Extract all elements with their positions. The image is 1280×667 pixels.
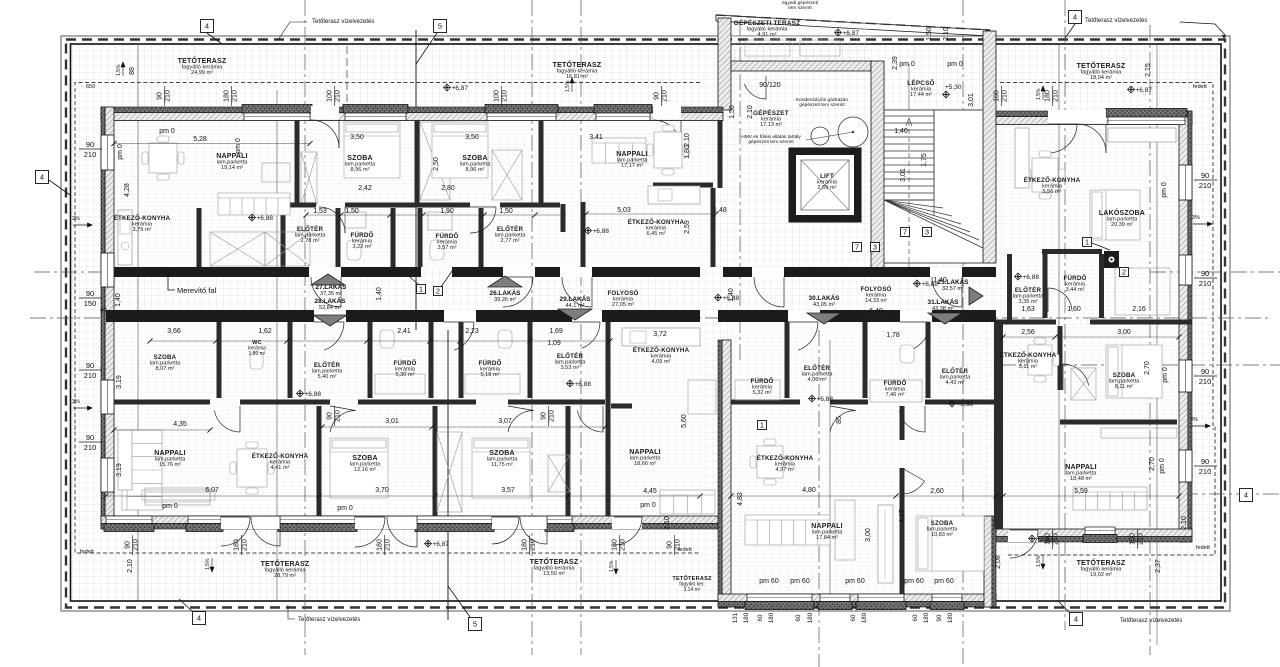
svg-text:4: 4 bbox=[205, 22, 209, 31]
svg-text:2,80: 2,80 bbox=[441, 185, 455, 192]
svg-text:650: 650 bbox=[86, 84, 95, 90]
svg-text:210: 210 bbox=[1199, 279, 1212, 288]
svg-text:2,37: 2,37 bbox=[1155, 559, 1162, 573]
svg-text:2,77 m²: 2,77 m² bbox=[501, 238, 520, 244]
svg-text:37,35 m²: 37,35 m² bbox=[320, 291, 342, 297]
svg-text:4: 4 bbox=[40, 173, 44, 182]
svg-text:4,06 m²: 4,06 m² bbox=[808, 377, 827, 383]
svg-text:13,50 m²: 13,50 m² bbox=[543, 571, 565, 577]
svg-text:2,78 m²: 2,78 m² bbox=[301, 238, 320, 244]
svg-text:terv szerint: terv szerint bbox=[788, 5, 812, 11]
svg-text:18,04 m²: 18,04 m² bbox=[1090, 75, 1112, 81]
svg-text:4,45: 4,45 bbox=[643, 488, 657, 495]
svg-text:3,00: 3,00 bbox=[865, 528, 872, 542]
svg-text:Tetőterasz vízelvezetés: Tetőterasz vízelvezetés bbox=[312, 19, 374, 25]
svg-text:5,56 m²: 5,56 m² bbox=[1043, 189, 1062, 195]
svg-text:8,96 m²: 8,96 m² bbox=[351, 167, 370, 173]
svg-text:3,79 m²: 3,79 m² bbox=[133, 227, 152, 233]
svg-text:90: 90 bbox=[1201, 367, 1209, 376]
svg-text:5,40 m²: 5,40 m² bbox=[318, 374, 337, 380]
svg-text:1,40: 1,40 bbox=[115, 293, 122, 307]
svg-text:17,84 m²: 17,84 m² bbox=[816, 535, 838, 541]
svg-text:52,84 m²: 52,84 m² bbox=[319, 305, 341, 311]
svg-text:pm 60: pm 60 bbox=[790, 578, 810, 585]
svg-text:gépészeti terv szerint: gépészeti terv szerint bbox=[799, 102, 845, 108]
svg-text:90: 90 bbox=[125, 541, 132, 549]
svg-text:88: 88 bbox=[129, 67, 136, 75]
svg-text:60: 60 bbox=[850, 614, 857, 621]
svg-text:85: 85 bbox=[836, 416, 843, 424]
svg-text:27.LAKÁS: 27.LAKÁS bbox=[316, 282, 348, 291]
svg-text:Tetőterasz vízelvezetés: Tetőterasz vízelvezetés bbox=[1120, 618, 1182, 624]
svg-text:19,14 m²: 19,14 m² bbox=[221, 165, 243, 171]
svg-text:2,10: 2,10 bbox=[747, 105, 754, 119]
svg-text:3,14 m²: 3,14 m² bbox=[684, 587, 701, 593]
svg-text:180: 180 bbox=[1045, 90, 1052, 102]
svg-text:210: 210 bbox=[1199, 467, 1212, 476]
svg-text:1,50: 1,50 bbox=[499, 208, 513, 215]
svg-text:1: 1 bbox=[760, 421, 764, 430]
svg-text:2,39: 2,39 bbox=[892, 56, 899, 70]
svg-text:180: 180 bbox=[522, 539, 529, 551]
svg-text:pm 0: pm 0 bbox=[1159, 458, 1166, 474]
svg-text:40: 40 bbox=[100, 308, 107, 314]
svg-text:2,41: 2,41 bbox=[397, 328, 411, 335]
svg-text:3,53 m²: 3,53 m² bbox=[561, 365, 580, 371]
svg-text:+6,87: +6,87 bbox=[843, 30, 860, 37]
svg-text:pm 0: pm 0 bbox=[162, 503, 178, 510]
svg-text:3,01: 3,01 bbox=[900, 168, 907, 182]
svg-text:1,48: 1,48 bbox=[713, 207, 727, 214]
svg-text:1,63: 1,63 bbox=[1021, 306, 1035, 313]
svg-text:3%: 3% bbox=[1192, 215, 1200, 221]
svg-text:1,5%: 1,5% bbox=[1036, 555, 1042, 567]
svg-text:90: 90 bbox=[667, 541, 674, 549]
svg-text:2: 2 bbox=[436, 287, 440, 296]
svg-text:210: 210 bbox=[1053, 533, 1060, 545]
svg-text:Merevítő fal: Merevítő fal bbox=[177, 286, 217, 295]
svg-text:150: 150 bbox=[1130, 533, 1137, 545]
svg-text:2,60: 2,60 bbox=[930, 488, 944, 495]
svg-text:90: 90 bbox=[86, 433, 94, 442]
svg-text:fedett: fedett bbox=[1196, 545, 1210, 551]
svg-text:1,5%: 1,5% bbox=[116, 64, 122, 76]
svg-text:2,10: 2,10 bbox=[684, 133, 691, 147]
svg-text:1,40: 1,40 bbox=[376, 287, 383, 301]
svg-text:4,80: 4,80 bbox=[802, 487, 816, 494]
svg-text:1: 1 bbox=[1085, 238, 1089, 247]
svg-text:3,19: 3,19 bbox=[116, 463, 123, 477]
svg-text:60: 60 bbox=[912, 614, 919, 621]
svg-text:2,10: 2,10 bbox=[664, 516, 671, 530]
svg-text:2,10: 2,10 bbox=[1181, 516, 1188, 530]
svg-text:1,5%: 1,5% bbox=[205, 558, 211, 570]
svg-text:18,48 m²: 18,48 m² bbox=[1070, 476, 1092, 482]
svg-text:100: 100 bbox=[494, 90, 501, 102]
svg-text:pm 0: pm 0 bbox=[899, 61, 915, 68]
svg-text:210: 210 bbox=[335, 90, 342, 102]
svg-text:16,81 m²: 16,81 m² bbox=[566, 74, 588, 80]
svg-text:15,76 m²: 15,76 m² bbox=[159, 462, 181, 468]
svg-text:5,60: 5,60 bbox=[681, 414, 688, 428]
svg-text:210: 210 bbox=[232, 90, 239, 102]
svg-text:19,02 m²: 19,02 m² bbox=[1090, 572, 1112, 578]
svg-text:17,13 m²: 17,13 m² bbox=[760, 122, 782, 128]
svg-text:+6,88: +6,88 bbox=[305, 391, 322, 398]
svg-text:14,33 m²: 14,33 m² bbox=[865, 298, 887, 304]
svg-text:+6,87: +6,87 bbox=[452, 85, 469, 92]
svg-text:3,22 m²: 3,22 m² bbox=[353, 244, 372, 250]
svg-text:1,53: 1,53 bbox=[313, 208, 327, 215]
svg-text:210: 210 bbox=[165, 90, 172, 102]
svg-text:90/120: 90/120 bbox=[759, 82, 781, 89]
svg-text:210: 210 bbox=[530, 539, 537, 551]
svg-text:210: 210 bbox=[133, 539, 140, 551]
svg-text:1,40: 1,40 bbox=[894, 128, 908, 135]
svg-text:210: 210 bbox=[385, 539, 392, 551]
svg-text:1,50: 1,50 bbox=[729, 105, 736, 119]
svg-text:39,26 m²: 39,26 m² bbox=[494, 297, 516, 303]
svg-text:3,72: 3,72 bbox=[653, 331, 667, 338]
svg-text:210: 210 bbox=[1199, 377, 1212, 386]
svg-text:7,46 m²: 7,46 m² bbox=[886, 392, 905, 398]
svg-text:2,10: 2,10 bbox=[943, 27, 950, 41]
svg-text:3,41: 3,41 bbox=[589, 134, 603, 141]
svg-text:3,01: 3,01 bbox=[385, 418, 399, 425]
svg-text:pm 0: pm 0 bbox=[235, 138, 242, 154]
svg-text:3,66: 3,66 bbox=[167, 328, 181, 335]
svg-text:1,90: 1,90 bbox=[440, 208, 454, 215]
svg-text:24,99 m²: 24,99 m² bbox=[191, 70, 213, 76]
svg-text:90: 90 bbox=[86, 361, 94, 370]
svg-text:1,5%: 1,5% bbox=[565, 80, 571, 92]
svg-text:210: 210 bbox=[620, 539, 627, 551]
svg-text:30.LAKÁS: 30.LAKÁS bbox=[809, 293, 841, 302]
svg-text:3: 3 bbox=[925, 228, 929, 237]
svg-text:5,28: 5,28 bbox=[193, 136, 207, 143]
svg-text:3,50: 3,50 bbox=[465, 134, 479, 141]
svg-text:2,10: 2,10 bbox=[127, 559, 134, 573]
svg-text:210: 210 bbox=[242, 539, 249, 551]
svg-text:1,5%: 1,5% bbox=[1036, 88, 1042, 100]
svg-text:28.LAKÁS: 28.LAKÁS bbox=[315, 296, 347, 305]
svg-text:2,50: 2,50 bbox=[433, 157, 440, 171]
svg-text:131: 131 bbox=[732, 612, 739, 623]
svg-text:5,59: 5,59 bbox=[1074, 488, 1088, 495]
svg-text:1,78: 1,78 bbox=[886, 332, 900, 339]
svg-text:2,70: 2,70 bbox=[1149, 457, 1156, 471]
svg-text:2,15: 2,15 bbox=[1145, 63, 1152, 77]
svg-text:fedett: fedett bbox=[1193, 84, 1207, 90]
svg-text:4: 4 bbox=[1244, 491, 1248, 500]
svg-text:pm 0: pm 0 bbox=[337, 505, 353, 512]
svg-text:1,75: 1,75 bbox=[921, 153, 928, 167]
svg-text:4,28: 4,28 bbox=[124, 183, 131, 197]
svg-text:Tetőterasz vízelvezetés: Tetőterasz vízelvezetés bbox=[298, 617, 360, 623]
svg-text:4,09 m²: 4,09 m² bbox=[652, 359, 671, 365]
svg-text:8,96 m²: 8,96 m² bbox=[466, 167, 485, 173]
svg-text:17,44 m²: 17,44 m² bbox=[910, 92, 932, 98]
svg-text:150: 150 bbox=[84, 299, 97, 308]
svg-text:1,60: 1,60 bbox=[1067, 306, 1081, 313]
svg-text:210: 210 bbox=[662, 90, 669, 102]
svg-text:210: 210 bbox=[84, 371, 97, 380]
svg-text:1,80 m²: 1,80 m² bbox=[249, 351, 266, 357]
svg-text:4,97 m²: 4,97 m² bbox=[776, 467, 795, 473]
svg-text:+6,88: +6,88 bbox=[575, 381, 592, 388]
svg-text:90: 90 bbox=[1201, 457, 1209, 466]
svg-text:3,35 m²: 3,35 m² bbox=[1019, 299, 1038, 305]
svg-text:90: 90 bbox=[86, 140, 94, 149]
svg-text:43,38 m²: 43,38 m² bbox=[932, 306, 954, 312]
svg-text:1,50: 1,50 bbox=[926, 27, 933, 41]
svg-text:11,75 m²: 11,75 m² bbox=[491, 462, 513, 468]
svg-text:3,00: 3,00 bbox=[1117, 329, 1131, 336]
svg-text:pm 0: pm 0 bbox=[640, 502, 656, 509]
svg-text:3%: 3% bbox=[72, 399, 80, 405]
svg-text:2,08: 2,08 bbox=[995, 555, 1002, 569]
svg-text:210: 210 bbox=[675, 539, 682, 551]
svg-text:+6,88: +6,88 bbox=[593, 228, 610, 235]
svg-text:210: 210 bbox=[549, 410, 556, 422]
svg-text:5,11 m²: 5,11 m² bbox=[1019, 364, 1038, 370]
svg-text:90: 90 bbox=[1201, 269, 1209, 278]
svg-text:6,07: 6,07 bbox=[205, 487, 219, 494]
svg-text:5,30 m²: 5,30 m² bbox=[396, 372, 415, 378]
svg-text:210: 210 bbox=[1002, 90, 1009, 102]
svg-text:2,16: 2,16 bbox=[1132, 306, 1146, 313]
svg-text:pm 0: pm 0 bbox=[159, 128, 175, 135]
svg-text:210: 210 bbox=[1199, 181, 1212, 190]
svg-text:2,70: 2,70 bbox=[1144, 361, 1151, 375]
svg-text:180: 180 bbox=[923, 612, 930, 623]
svg-text:3,44 m²: 3,44 m² bbox=[1066, 287, 1085, 293]
svg-text:1,40: 1,40 bbox=[728, 288, 735, 302]
svg-text:2,23: 2,23 bbox=[465, 328, 479, 335]
svg-text:60: 60 bbox=[795, 614, 802, 621]
svg-text:4,35: 4,35 bbox=[173, 421, 187, 428]
svg-text:210: 210 bbox=[502, 90, 509, 102]
svg-text:180: 180 bbox=[1045, 533, 1052, 545]
svg-text:12,16 m²: 12,16 m² bbox=[354, 467, 376, 473]
svg-text:180: 180 bbox=[234, 539, 241, 551]
svg-text:5,03: 5,03 bbox=[617, 207, 631, 214]
svg-text:3,70: 3,70 bbox=[375, 487, 389, 494]
svg-text:26.LAKÁS: 26.LAKÁS bbox=[490, 288, 522, 297]
svg-text:pm 60: pm 60 bbox=[904, 578, 924, 585]
svg-text:3,57 m²: 3,57 m² bbox=[438, 245, 457, 251]
svg-text:4: 4 bbox=[197, 614, 201, 623]
svg-text:180: 180 bbox=[947, 612, 954, 623]
svg-text:3%: 3% bbox=[1190, 417, 1198, 423]
svg-text:90: 90 bbox=[936, 614, 943, 621]
svg-text:pm 60: pm 60 bbox=[845, 578, 865, 585]
svg-text:2: 2 bbox=[1122, 268, 1126, 277]
svg-text:100: 100 bbox=[327, 90, 334, 102]
svg-text:gépészeti terv szerint: gépészeti terv szerint bbox=[748, 139, 794, 145]
svg-text:180: 180 bbox=[743, 612, 750, 623]
svg-text:17,17 m²: 17,17 m² bbox=[621, 163, 643, 169]
svg-text:1,40: 1,40 bbox=[933, 277, 947, 284]
svg-text:2,56: 2,56 bbox=[1021, 329, 1035, 336]
svg-text:210: 210 bbox=[1053, 90, 1060, 102]
svg-text:180: 180 bbox=[768, 612, 775, 623]
svg-text:8,07 m²: 8,07 m² bbox=[156, 366, 175, 372]
svg-text:+6,87: +6,87 bbox=[433, 541, 450, 548]
svg-text:5,32 m²: 5,32 m² bbox=[753, 390, 772, 396]
svg-text:180: 180 bbox=[377, 539, 384, 551]
svg-text:+5,30: +5,30 bbox=[945, 84, 962, 91]
svg-text:27,05 m²: 27,05 m² bbox=[612, 302, 634, 308]
svg-text:+6,88: +6,88 bbox=[957, 401, 974, 408]
svg-text:90: 90 bbox=[86, 289, 94, 298]
svg-text:90: 90 bbox=[1201, 171, 1209, 180]
svg-text:4: 4 bbox=[1074, 615, 1078, 624]
svg-text:+6,88: +6,88 bbox=[817, 396, 834, 403]
svg-text:3,01: 3,01 bbox=[968, 93, 975, 107]
svg-text:43,05 m²: 43,05 m² bbox=[813, 302, 835, 308]
svg-text:210: 210 bbox=[84, 150, 97, 159]
svg-text:Tetőterasz vízelvezetés: Tetőterasz vízelvezetés bbox=[1085, 18, 1147, 24]
svg-text:1,5%: 1,5% bbox=[609, 560, 615, 572]
svg-text:5,18 m²: 5,18 m² bbox=[481, 372, 500, 378]
svg-text:1: 1 bbox=[419, 285, 423, 294]
svg-text:5: 5 bbox=[473, 620, 477, 629]
svg-text:4,43 m²: 4,43 m² bbox=[946, 380, 965, 386]
svg-text:31.LAKÁS: 31.LAKÁS bbox=[928, 297, 960, 306]
svg-text:100: 100 bbox=[994, 90, 1001, 102]
svg-text:18,66 m²: 18,66 m² bbox=[634, 461, 656, 467]
svg-text:1,62: 1,62 bbox=[258, 328, 272, 335]
svg-text:90: 90 bbox=[327, 412, 334, 420]
svg-text:pm 0: pm 0 bbox=[947, 61, 963, 68]
svg-text:28,79 m²: 28,79 m² bbox=[274, 573, 296, 579]
svg-text:fedett: fedett bbox=[80, 549, 94, 555]
svg-text:2,59 m²: 2,59 m² bbox=[818, 185, 837, 191]
svg-text:4,91 m²: 4,91 m² bbox=[758, 32, 777, 38]
svg-text:1,50: 1,50 bbox=[345, 208, 359, 215]
svg-text:3: 3 bbox=[873, 243, 877, 252]
svg-text:4: 4 bbox=[1073, 13, 1077, 22]
svg-text:pm 60: pm 60 bbox=[759, 578, 779, 585]
svg-text:7: 7 bbox=[903, 228, 907, 237]
svg-text:7: 7 bbox=[855, 243, 859, 252]
svg-text:pm 0: pm 0 bbox=[117, 144, 124, 160]
svg-text:+6,88: +6,88 bbox=[1023, 274, 1040, 281]
svg-text:180: 180 bbox=[861, 612, 868, 623]
svg-text:90: 90 bbox=[157, 92, 164, 100]
svg-text:pm 60: pm 60 bbox=[934, 578, 954, 585]
svg-text:3,57: 3,57 bbox=[501, 487, 515, 494]
svg-text:2,59: 2,59 bbox=[684, 220, 691, 234]
svg-text:3,50: 3,50 bbox=[350, 134, 364, 141]
svg-text:29.LAKÁS: 29.LAKÁS bbox=[560, 294, 592, 303]
svg-text:8,11 m²: 8,11 m² bbox=[1115, 384, 1134, 390]
svg-text:5: 5 bbox=[438, 22, 442, 31]
svg-text:90: 90 bbox=[654, 92, 661, 100]
svg-text:210: 210 bbox=[335, 410, 342, 422]
svg-text:90: 90 bbox=[541, 412, 548, 420]
svg-text:pm 0: pm 0 bbox=[1161, 182, 1168, 198]
svg-text:210: 210 bbox=[84, 443, 97, 452]
svg-text:1,69: 1,69 bbox=[549, 328, 563, 335]
svg-text:6,40: 6,40 bbox=[869, 308, 883, 315]
svg-text:4,83: 4,83 bbox=[737, 492, 744, 506]
svg-text:44,1 m²: 44,1 m² bbox=[566, 303, 585, 309]
svg-text:20,39 m²: 20,39 m² bbox=[1111, 222, 1133, 228]
svg-text:+6,88: +6,88 bbox=[257, 215, 274, 222]
svg-text:4,41 m²: 4,41 m² bbox=[271, 465, 290, 471]
svg-text:4,17: 4,17 bbox=[899, 509, 906, 523]
svg-text:pm 0: pm 0 bbox=[1162, 367, 1169, 383]
svg-text:60: 60 bbox=[757, 614, 764, 621]
svg-text:180: 180 bbox=[612, 539, 619, 551]
svg-text:180: 180 bbox=[224, 90, 231, 102]
svg-text:6,45 m²: 6,45 m² bbox=[647, 231, 666, 237]
svg-text:3,19: 3,19 bbox=[116, 375, 123, 389]
svg-text:1,80: 1,80 bbox=[684, 145, 691, 159]
svg-text:32,57 m²: 32,57 m² bbox=[942, 286, 964, 292]
svg-text:210: 210 bbox=[1138, 533, 1145, 545]
svg-text:2,42: 2,42 bbox=[358, 185, 372, 192]
svg-text:180: 180 bbox=[807, 612, 814, 623]
svg-text:+6,87: +6,87 bbox=[1136, 87, 1153, 94]
svg-text:10,83 m²: 10,83 m² bbox=[931, 532, 953, 538]
svg-text:3,07: 3,07 bbox=[498, 418, 512, 425]
svg-text:3%: 3% bbox=[72, 216, 80, 222]
